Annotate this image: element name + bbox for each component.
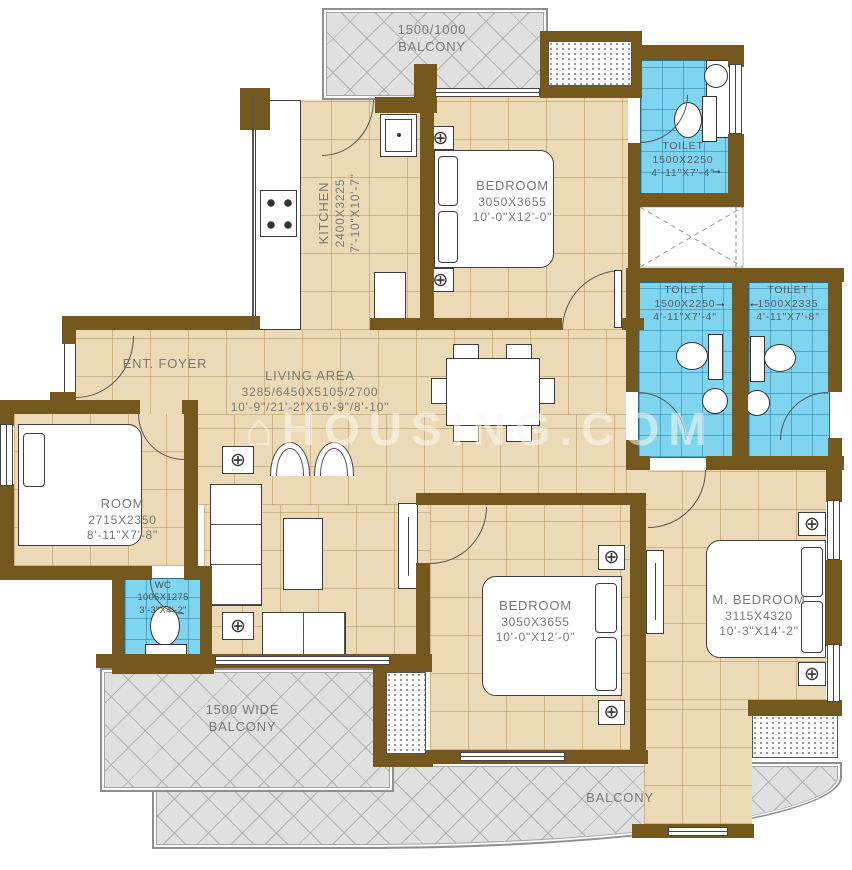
bedroom-top-label: BEDROOM 3050X3655 10'-0"X12'-0" [435,178,590,226]
wall-segment [8,400,140,414]
wardrobe-master [646,550,664,634]
side-table: ⊕ [598,545,625,570]
balcony-top-dim: 1500/1000 [352,22,512,39]
wall-segment [184,414,198,568]
wall-segment [416,563,430,663]
living-dim-mm: 3285/6450X5105/2700 [170,385,450,401]
sink-drain [397,133,401,137]
sofa-two-seat [262,612,346,660]
side-table: ⊕ [798,662,826,686]
wall-segment [540,85,642,98]
pillow [23,433,45,487]
kitchen-dim-ft: 7'-10"X10'-7" [348,138,364,288]
bedroom-top-dim-mm: 3050X3655 [435,195,590,211]
crosshair-icon: ⊕ [804,665,820,684]
master-bedroom-dim-ft: 10'-3"X14'-2" [678,624,840,640]
room-dim-ft: 8'-11"X7'-8" [45,528,200,544]
toilet-top-name: TOILET [638,140,728,154]
toilet-mid-left-dim-ft: 4'-11"X7'-4" [638,311,732,325]
wall-segment [828,282,842,392]
window [0,424,13,486]
wall-segment [62,316,76,344]
crosshair-icon: ⊕ [230,617,246,636]
sofa-three-seat [210,484,262,606]
kitchen-dim-mm: 2400X3225 [333,138,349,288]
wall-segment [0,400,14,426]
wall-segment [630,505,646,752]
floor-plan: ⊕ ⊕ ⊕ ⊕ ⊕ ⊕ ⊕ ⊕ [0,0,852,870]
wall-segment [420,100,434,320]
washbasin-icon [704,64,728,88]
balcony-bottom-name: BALCONY [540,790,700,807]
master-bedroom-name: M. BEDROOM [678,592,840,609]
wc-dim-ft: 3'-3"X4'-2" [124,605,202,617]
door-leaf-entrance [64,336,76,398]
wardrobe-hatch-bottom [386,672,426,754]
crosshair-icon: ⊕ [604,548,620,567]
kitchen-label: KITCHEN 2400X3225 7'-10"X10'-7" [316,138,364,288]
crosshair-icon: ⊕ [804,515,820,534]
wall-segment [642,45,742,60]
crosshair-icon: ⊕ [604,703,620,722]
tv-unit [398,503,418,589]
crosshair-icon: ⊕ [433,271,449,290]
housing-watermark: ⌂HOUSING.COM [245,402,852,456]
window [827,644,840,702]
room-name: ROOM [45,496,200,513]
sink-icon [380,114,417,157]
wall-segment [628,193,744,207]
window [668,827,728,836]
window [827,500,840,560]
bedroom-top-name: BEDROOM [435,178,590,195]
balcony-bottom-label: BALCONY [540,790,700,807]
wall-segment [706,456,844,470]
wall-segment [548,31,638,41]
dim-arrow-icon: → [710,163,723,176]
door-leaf-bedroom-top [614,270,622,328]
wall-segment [626,268,844,282]
balcony-left-dim: 1500 WIDE [160,702,325,719]
toilet-tank [702,96,717,142]
toilet-mid-right-dim-ft: 4'-11"X7'-8" [748,311,828,325]
stove-icon [260,190,297,237]
coffee-table [283,518,323,590]
wall-segment [240,88,270,130]
window [729,64,742,134]
wc-label: WC 1005X1275 3'-3"X4'-2" [124,580,202,617]
wall-segment [626,456,650,470]
side-table: ⊕ [798,512,826,536]
side-table: ⊕ [222,612,254,640]
bedroom-bottom-label: BEDROOM 3050X3655 10'-0"X12'-0" [458,598,613,646]
master-bedroom-label: M. BEDROOM 3115X4320 10'-3"X14'-2" [678,592,840,640]
dim-arrow-icon: ← [748,296,761,309]
wall-segment [370,318,562,330]
toilet-bowl-icon [764,344,796,372]
balcony-left-label: 1500 WIDE BALCONY [160,702,325,736]
crosshair-icon: ⊕ [433,129,449,148]
wall-segment [826,470,842,502]
bedroom-bottom-dim-ft: 10'-0"X12'-0" [458,630,613,646]
wardrobe-hatch-top [548,41,632,86]
wall-segment [748,700,840,716]
crosshair-icon: ⊕ [230,451,246,470]
wc-dim-mm: 1005X1275 [124,592,202,604]
balcony-top-name: BALCONY [352,39,512,56]
wall-segment [628,85,640,97]
dim-arrow-icon: → [714,296,727,309]
window [435,88,540,97]
ledge-hatch [752,715,838,758]
bedroom-top-dim-ft: 10'-0"X12'-0" [435,210,590,226]
kitchen-outer-line [252,95,254,330]
dining-chair [539,378,555,404]
room-dim-mm: 2715X2350 [45,513,200,529]
pillow [801,547,823,597]
wall-segment [626,282,638,392]
balcony-left-name: BALCONY [160,719,325,736]
watermark-text: HOUSING.COM [282,403,716,455]
room-label: ROOM 2715X2350 8'-11"X7'-8" [45,496,200,544]
bedroom-bottom-dim-mm: 3050X3655 [458,615,613,631]
watermark-house-icon: ⌂ [245,403,282,455]
window-balcony-door [215,656,390,665]
wall-segment [62,316,260,330]
bedroom-bottom-name: BEDROOM [458,598,613,615]
side-table: ⊕ [598,700,625,725]
wc-name: WC [124,580,202,592]
wall-segment [728,134,744,196]
toilet-tank [750,336,765,382]
window [460,752,565,761]
wall-segment [0,566,152,580]
toilet-bowl-icon [676,342,708,370]
wall-segment [373,660,387,767]
living-name: LIVING AREA [170,368,450,385]
wall-segment [416,493,646,505]
wall-segment [414,64,437,97]
toilet-tank [708,334,723,380]
master-bedroom-dim-mm: 3115X4320 [678,609,840,625]
kitchen-name: KITCHEN [316,138,333,288]
duct-shaft [640,207,744,268]
balcony-top-label: 1500/1000 BALCONY [352,22,512,56]
